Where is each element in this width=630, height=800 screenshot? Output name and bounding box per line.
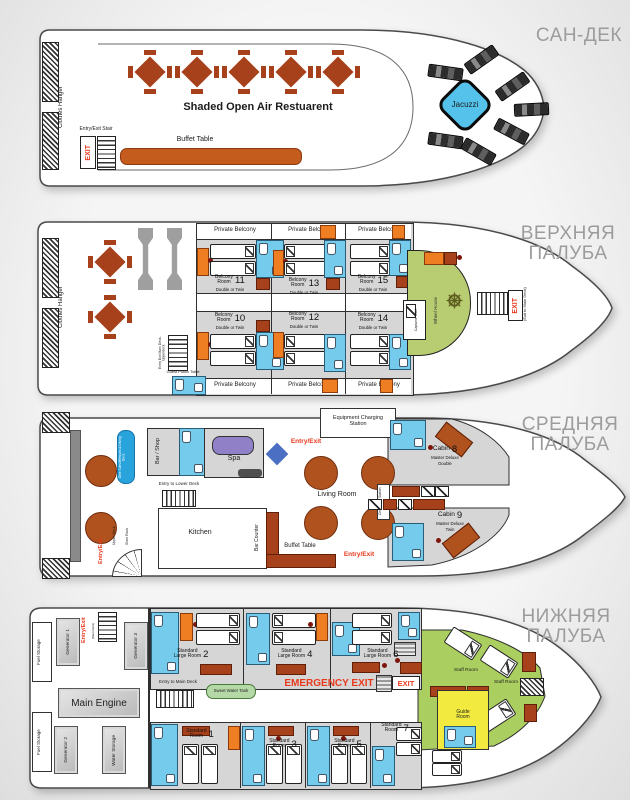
buffet-table <box>120 148 302 165</box>
private-balcony-label: Private Belcony <box>200 227 270 235</box>
emergency-ladder <box>376 675 392 692</box>
stairs-label: Entry Exit Main Deck-Upperdeck <box>159 333 167 373</box>
deck-title-middle: СРЕДНЯЯПАЛУБА <box>514 415 626 455</box>
bed <box>432 763 462 776</box>
shoe-rack-label: Shoe Rack <box>126 522 134 550</box>
wheel-house-label: Wheel House <box>434 288 443 332</box>
bed <box>196 630 240 645</box>
guest-toilet <box>172 376 206 395</box>
fuel-storage-label: Fuel Storage <box>37 715 47 769</box>
stool <box>436 538 441 543</box>
staff-room-label: Staff Room <box>444 668 488 676</box>
stern-platform <box>42 558 70 579</box>
room-label-4: StandardLarge Room4 <box>266 644 324 664</box>
bed <box>352 630 392 645</box>
bed <box>201 744 218 784</box>
entry-exit-stairs <box>97 136 116 170</box>
wall <box>370 722 371 788</box>
stern-platform <box>42 412 70 433</box>
bar-counter-label: Bar Counter <box>255 514 264 562</box>
wardrobe <box>273 332 284 358</box>
cabinet <box>333 726 359 736</box>
wardrobe <box>316 613 328 641</box>
console <box>383 499 397 510</box>
bed <box>284 351 326 366</box>
deck-sun: Clothes Hanger Entry/Exit Stair EXIT Sha… <box>0 10 630 212</box>
fuel-storage-label: Fuel Storage <box>37 625 47 679</box>
generator-1: Generator 1 <box>56 618 80 666</box>
dining-table <box>316 50 360 94</box>
generator-2: Generator 2 <box>54 726 78 774</box>
room-label-11: BelconyRoom11 Double or Twin <box>202 273 258 293</box>
game-table <box>266 443 288 465</box>
private-balcony-label: Private Belcony <box>200 382 270 390</box>
wardrobe <box>522 652 536 672</box>
room-label-2: StandardLarge Room2 <box>162 644 220 664</box>
exit-sign: EXIT <box>392 676 420 690</box>
bed <box>350 351 390 366</box>
room-label-7: StandardRoom7 <box>372 720 418 736</box>
balcony-lounger <box>380 379 393 393</box>
stairs <box>162 490 196 507</box>
captains-toilet: Captains Toilet <box>403 300 426 340</box>
bed <box>272 630 316 645</box>
bathroom <box>398 612 420 640</box>
main-engine: Main Engine <box>58 688 140 718</box>
room-label-12: BelconyRoom12 Double or Twin <box>276 310 332 330</box>
bathroom <box>242 726 265 786</box>
entry-lower-label: Entry to Lower Deck <box>150 482 208 490</box>
wardrobe <box>180 613 193 641</box>
bathroom <box>307 726 330 786</box>
entry-main-deck-label: Entry to Main Deck <box>150 680 206 688</box>
living-room-label: Living Room <box>302 491 372 500</box>
equipment-charging-label: Equipment ChargingStation <box>323 416 393 428</box>
stairs <box>168 335 188 371</box>
sun-lounger <box>514 102 550 117</box>
bench-seat <box>238 469 262 477</box>
private-balcony-label: Private Belcony <box>348 382 410 390</box>
exit-sign: EXIT <box>508 290 523 321</box>
fuel-storage: Fuel Storage <box>32 622 52 682</box>
wardrobe <box>273 250 284 276</box>
cabinet <box>268 726 294 736</box>
room-label-14: BelconyRoom14 Double or Twin <box>346 311 400 331</box>
deck-title-lower: НИЖНЯЯПАЛУБА <box>508 607 624 647</box>
dive-deck-sign-text: Dive Suits/Wetsuits & Diving Deck <box>119 433 132 481</box>
room-label-3: StandardRoom3 <box>260 736 306 752</box>
balcony-lounger <box>392 225 405 239</box>
kitchen-label: Kitchen <box>170 529 230 538</box>
equipment-charging-station: Equipment ChargingStation <box>320 408 396 438</box>
deck-middle: Dive Suits/Wetsuits & Diving Deck Entry/… <box>0 405 630 597</box>
clothes-hanger-label: Clothes Hanger <box>58 267 68 347</box>
wardrobe <box>524 704 537 722</box>
cabinet <box>256 278 270 290</box>
generator-3: Generator 3 <box>124 622 148 670</box>
deck-title-upper: ВЕРХНЯЯПАЛУБА <box>512 224 624 264</box>
bed <box>396 742 422 756</box>
exit-sub-label: (Exit to Main Deck) <box>523 278 531 330</box>
ship-wheel-icon <box>446 292 463 309</box>
bathroom <box>179 428 206 476</box>
kitchen <box>158 508 267 569</box>
clothes-hanger-rack <box>42 308 59 368</box>
stairs <box>156 690 194 708</box>
buffet-table-label: Buffet Table <box>150 136 240 145</box>
clothes-hanger-rack <box>42 42 59 102</box>
captains-toilet-label: Captains Toilet <box>415 303 423 337</box>
dining-table <box>88 295 132 339</box>
stairs <box>477 292 508 315</box>
bed <box>350 334 390 349</box>
cabinet <box>256 320 270 332</box>
wardrobe <box>197 248 209 276</box>
cabinet <box>276 664 306 675</box>
bathroom <box>324 334 346 372</box>
entry-exit-label: Entry/Exit <box>99 536 110 566</box>
dining-table <box>128 50 172 94</box>
dining-table <box>88 240 132 284</box>
wall <box>243 608 244 688</box>
jacuzzi: Jacuzzi <box>440 80 490 130</box>
deck-lower: Fuel Storage Fuel Storage Generator 1 Ge… <box>0 600 630 800</box>
bathroom <box>444 726 476 748</box>
dining-table <box>269 50 313 94</box>
balcony-lounger <box>322 379 338 393</box>
entry-exit-stair-label: Entry/Exit Stair <box>64 127 128 134</box>
bathroom <box>151 612 179 674</box>
sweet-water-label: Sweet Water Tank <box>207 689 255 694</box>
water-storage: Water Storage <box>102 726 126 774</box>
bar-shop-label: Bar / Shop <box>156 432 168 470</box>
room-label-6: StandardLarge Room6 <box>352 644 410 664</box>
round-table <box>304 456 338 490</box>
dining-table <box>222 50 266 94</box>
room-label-10: BelconyRoom10 Double or Twin <box>202 311 258 331</box>
restaurant-label: Shaded Open Air Restuarent <box>128 102 388 114</box>
transom-wall <box>70 430 81 562</box>
wall <box>330 608 331 688</box>
bed <box>196 613 240 628</box>
guide-room-label: GuideRoom <box>444 710 482 724</box>
wardrobe <box>197 332 209 360</box>
dive-deck-sign: Dive Suits/Wetsuits & Diving Deck <box>117 430 135 484</box>
buffet-table-label: Buffet Table <box>270 543 330 552</box>
exit-sign: EXIT <box>80 136 96 169</box>
stairs <box>98 612 117 642</box>
buffet-counter <box>266 554 336 568</box>
stool <box>457 255 462 260</box>
bed <box>210 244 256 259</box>
spa-label: Spa <box>222 455 246 464</box>
room-label-15: BelconyRoom15 Double or Twin <box>346 273 400 293</box>
bed <box>284 334 326 349</box>
wardrobe <box>228 726 240 750</box>
balcony-lounger <box>320 225 336 239</box>
round-table <box>85 455 117 487</box>
wall <box>240 722 241 788</box>
cabin9-label: Cabin9 Master Deluxe Twin <box>420 509 480 533</box>
spa-tub <box>212 436 254 455</box>
deck-upper: Clothes Hanger Private Belcony Private B… <box>0 212 630 404</box>
deck-title-sun: САН-ДЕК <box>506 26 622 46</box>
bed <box>432 750 462 763</box>
sweet-water-tank: Sweet Water Tank <box>206 684 256 699</box>
dresser <box>368 499 382 510</box>
staff-room-label: Staff Room <box>484 680 528 688</box>
room-label-1: StandardRoom1 <box>174 726 226 742</box>
dresser <box>398 499 412 510</box>
bed <box>284 244 326 259</box>
upper-deck-label: Upper Deck <box>113 522 121 550</box>
cabinet <box>444 252 457 265</box>
bed <box>210 351 256 366</box>
clothes-hanger-rack <box>42 238 59 298</box>
cabin8-label: Cabin8 Master Deluxe Double <box>414 443 476 467</box>
room-label-13: BelconyRoom13 Double or Twin <box>276 276 332 296</box>
bed <box>210 334 256 349</box>
bathroom <box>324 240 346 278</box>
entry-exit-label: Entry/Exit <box>283 438 329 447</box>
fuel-storage: Fuel Storage <box>32 712 52 772</box>
console <box>392 486 420 497</box>
room-label-5: StandardRoom5 <box>325 736 371 752</box>
clothes-hanger-rack <box>42 112 59 170</box>
dresser <box>435 486 449 497</box>
wardrobe <box>424 252 444 265</box>
jacuzzi-label: Jacuzzi <box>440 101 490 110</box>
bed <box>284 261 326 276</box>
entry-exit-label: Entry/Exit <box>336 551 382 560</box>
dining-table <box>175 50 219 94</box>
bed <box>350 244 390 259</box>
bed <box>352 613 392 628</box>
bed <box>182 744 199 784</box>
bathroom <box>372 746 395 786</box>
round-table <box>304 506 338 540</box>
emergency-exit-label: EMERGENCY EXIT <box>280 679 378 691</box>
stool <box>308 622 313 627</box>
cabinet <box>200 664 232 675</box>
dresser <box>421 486 435 497</box>
wall <box>305 722 306 788</box>
